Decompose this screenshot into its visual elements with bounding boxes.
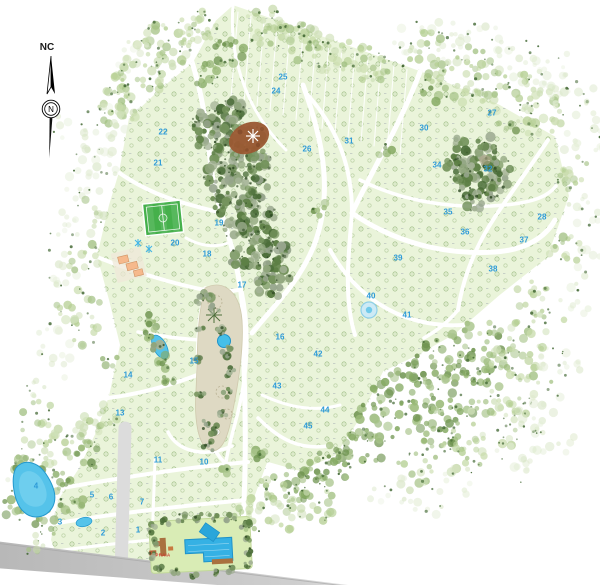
compass-tail [49, 118, 52, 158]
east-forest-clearing [479, 155, 491, 165]
soccer-field [142, 200, 183, 236]
map-canvas: NC N [0, 0, 600, 585]
compass: NC N [40, 42, 60, 158]
deck [160, 538, 167, 556]
compass-label: NC [40, 42, 54, 53]
compass-needle [47, 56, 51, 94]
compass-north-letter: N [48, 105, 54, 114]
site-plan-map: NC N 12345671011131415161718192021222425… [0, 0, 600, 585]
